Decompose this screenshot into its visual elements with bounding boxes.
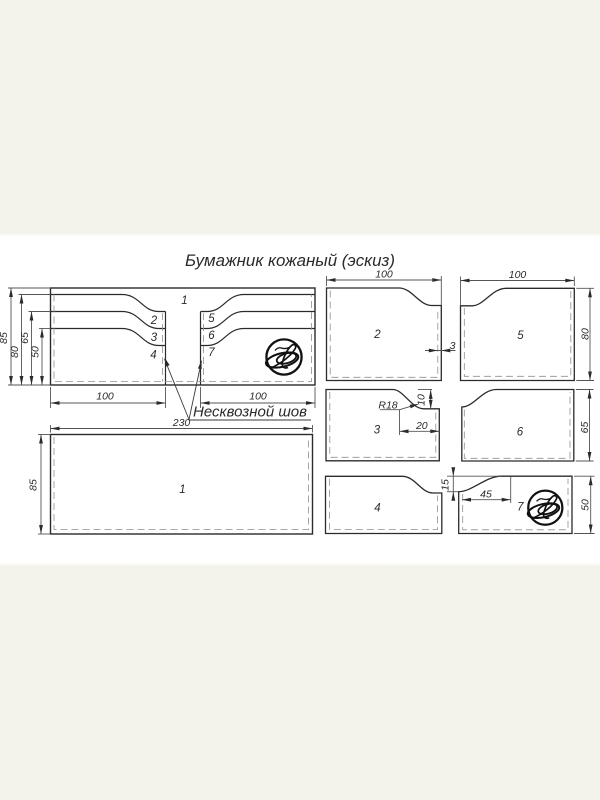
svg-text:6: 6 [517, 427, 524, 439]
svg-text:20: 20 [415, 420, 428, 432]
svg-text:3: 3 [374, 425, 381, 437]
svg-text:65: 65 [579, 422, 591, 434]
svg-text:3: 3 [151, 332, 158, 344]
svg-text:1: 1 [179, 484, 185, 496]
svg-text:80: 80 [9, 346, 21, 358]
svg-text:5: 5 [517, 330, 524, 342]
svg-text:4: 4 [150, 350, 156, 362]
svg-text:10: 10 [416, 394, 428, 406]
svg-text:2: 2 [373, 329, 381, 341]
svg-text:100: 100 [249, 391, 267, 403]
svg-text:65: 65 [19, 332, 31, 344]
svg-text:85: 85 [0, 332, 10, 344]
svg-text:5: 5 [208, 313, 215, 325]
svg-text:15: 15 [440, 479, 452, 491]
svg-text:100: 100 [375, 269, 393, 281]
svg-text:50: 50 [579, 499, 591, 511]
svg-text:7: 7 [208, 347, 215, 359]
svg-text:50: 50 [30, 346, 42, 358]
svg-text:7: 7 [517, 502, 524, 514]
svg-text:230: 230 [172, 417, 191, 429]
svg-text:3: 3 [450, 340, 456, 352]
svg-text:Бумажник кожаный (эскиз): Бумажник кожаный (эскиз) [185, 251, 395, 270]
svg-text:100: 100 [96, 391, 114, 403]
svg-text:Несквозной шов: Несквозной шов [193, 404, 307, 421]
svg-text:2: 2 [150, 315, 158, 327]
svg-text:6: 6 [208, 330, 215, 342]
svg-text:4: 4 [374, 503, 380, 515]
svg-text:100: 100 [509, 269, 527, 281]
svg-text:1: 1 [181, 295, 187, 307]
svg-text:85: 85 [28, 479, 40, 491]
svg-text:45: 45 [480, 489, 492, 501]
svg-text:80: 80 [579, 328, 591, 340]
